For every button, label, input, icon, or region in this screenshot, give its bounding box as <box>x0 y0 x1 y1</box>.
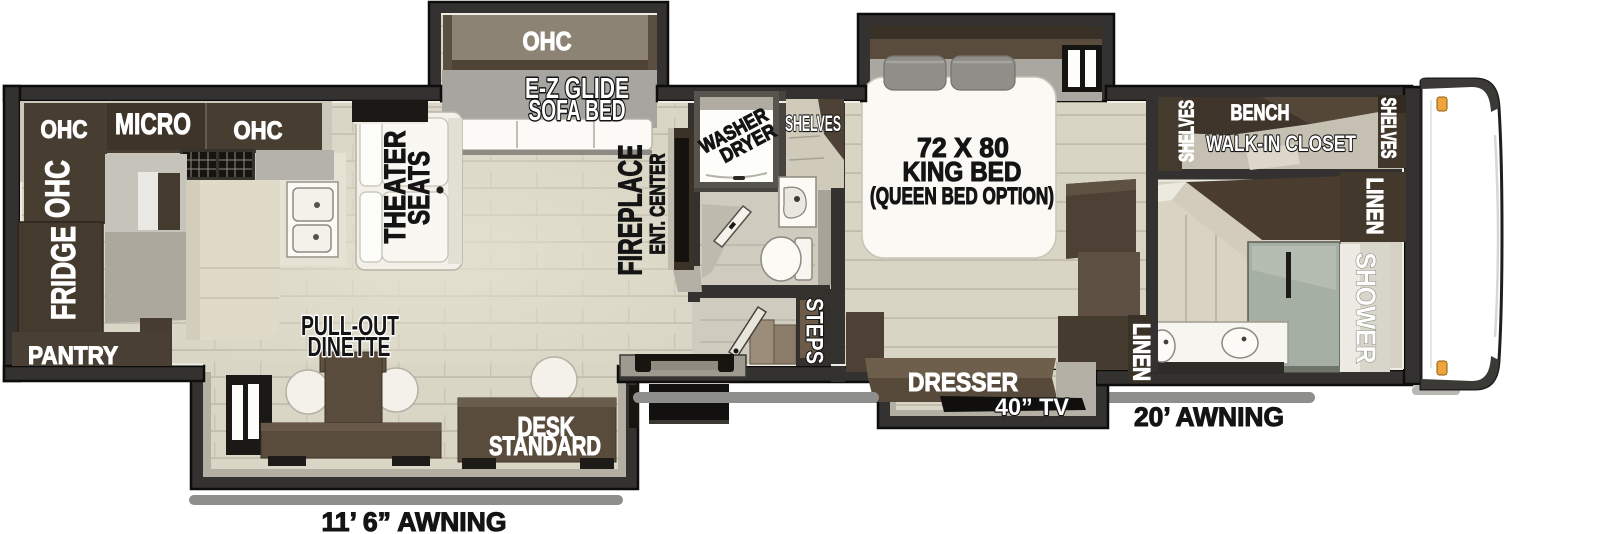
svg-text:20’ AWNING: 20’ AWNING <box>1134 402 1284 432</box>
svg-text:OHC: OHC <box>523 26 572 56</box>
svg-text:SHOWER: SHOWER <box>1351 253 1382 364</box>
svg-text:ENT. CENTER: ENT. CENTER <box>647 154 670 255</box>
svg-text:SEATS: SEATS <box>403 151 436 225</box>
svg-text:SOFA BED: SOFA BED <box>529 95 626 127</box>
svg-text:LINEN: LINEN <box>1128 323 1155 381</box>
svg-text:STEPS: STEPS <box>801 298 828 364</box>
svg-text:11’ 6” AWNING: 11’ 6” AWNING <box>322 507 507 534</box>
svg-text:DRESSER: DRESSER <box>908 367 1018 397</box>
svg-text:OHC: OHC <box>41 116 88 144</box>
svg-text:(QUEEN BED OPTION): (QUEEN BED OPTION) <box>870 183 1054 210</box>
svg-text:PANTRY: PANTRY <box>28 342 118 370</box>
svg-text:40” TV: 40” TV <box>995 394 1069 421</box>
svg-text:MICRO: MICRO <box>115 108 191 141</box>
svg-text:SHELVES: SHELVES <box>1376 98 1399 159</box>
svg-text:OHC: OHC <box>39 160 77 218</box>
svg-text:DINETTE: DINETTE <box>308 331 391 362</box>
svg-text:FRIDGE: FRIDGE <box>45 226 83 320</box>
svg-text:FIREPLACE: FIREPLACE <box>612 145 649 276</box>
svg-text:LINEN: LINEN <box>1362 178 1388 235</box>
svg-text:SHELVES: SHELVES <box>785 111 841 136</box>
svg-text:OHC: OHC <box>234 117 283 145</box>
svg-text:SHELVES: SHELVES <box>1176 100 1199 162</box>
svg-text:WALK-IN CLOSET: WALK-IN CLOSET <box>1206 131 1356 156</box>
svg-text:BENCH: BENCH <box>1231 100 1290 125</box>
svg-text:STANDARD: STANDARD <box>489 431 601 461</box>
